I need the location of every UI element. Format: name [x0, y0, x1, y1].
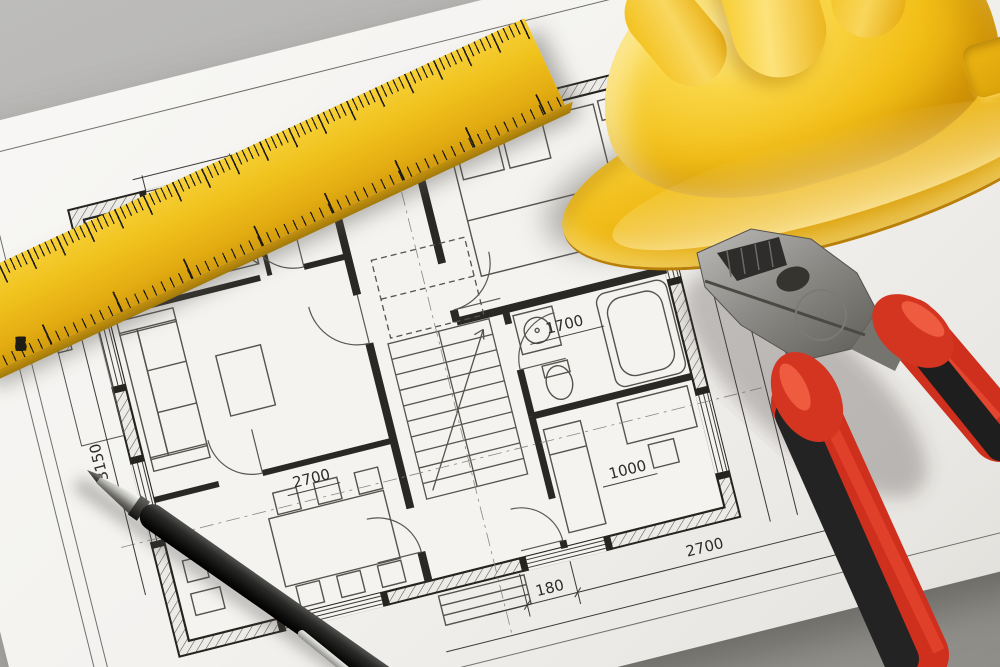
pliers: [655, 215, 1000, 667]
construction-flatlay-photo: 2700 1700 1000 180 2700 8010 6020 12 240…: [0, 0, 1000, 667]
